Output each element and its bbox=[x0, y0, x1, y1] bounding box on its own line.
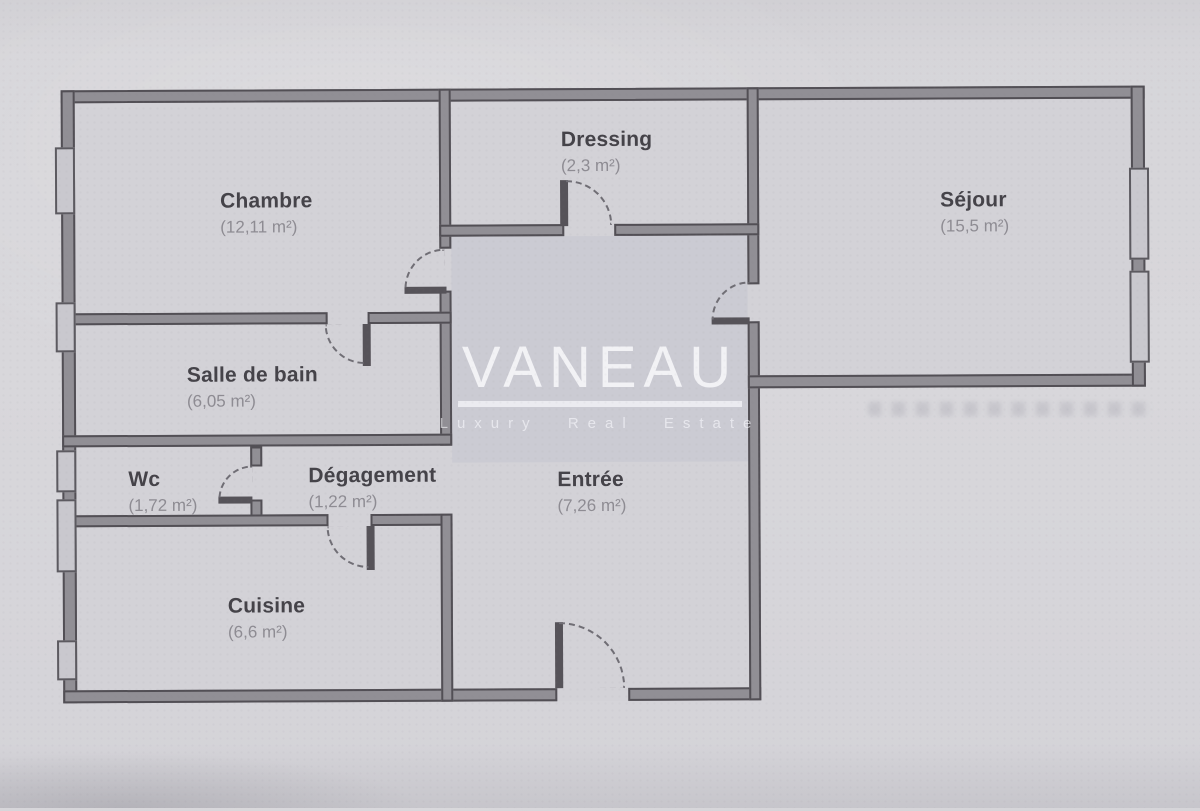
ink-bleed-through-artifact bbox=[868, 402, 1154, 416]
room-area-salle-de-bain: (6,05 m²) bbox=[187, 390, 318, 413]
wall-bottom-left-of-entry-door bbox=[63, 688, 557, 703]
room-name-wc: Wc bbox=[128, 468, 197, 492]
window-chambre-left bbox=[55, 147, 75, 214]
wall-sejour-left-upper bbox=[747, 87, 760, 284]
watermark-rule bbox=[458, 401, 742, 407]
wall-dressing-bottom-right bbox=[614, 223, 759, 236]
wall-salle-de-bain-bottom bbox=[62, 434, 452, 448]
room-area-cuisine: (6,6 m²) bbox=[228, 621, 305, 643]
window-sejour-right-lower bbox=[1129, 271, 1149, 363]
room-name-entree: Entrée bbox=[557, 468, 626, 492]
room-name-cuisine: Cuisine bbox=[228, 594, 305, 618]
room-area-dressing: (2,3 m²) bbox=[561, 155, 653, 177]
wall-wc-degagement-upper bbox=[250, 446, 262, 466]
room-area-wc: (1,72 m²) bbox=[128, 495, 197, 517]
room-label-wc: Wc (1,72 m²) bbox=[128, 468, 197, 517]
room-area-entree: (7,26 m²) bbox=[557, 495, 626, 517]
room-area-degagement: (1,22 m²) bbox=[308, 491, 436, 514]
watermark-brand-logo: VANEAU bbox=[435, 338, 765, 398]
window-wc-left bbox=[56, 499, 76, 572]
room-area-chambre: (12,11 m²) bbox=[220, 216, 313, 238]
room-label-chambre: Chambre (12,11 m²) bbox=[220, 189, 313, 238]
window-sejour-right-upper bbox=[1129, 168, 1149, 260]
wall-dressing-bottom-left bbox=[439, 224, 564, 237]
room-label-degagement: Dégagement (1,22 m²) bbox=[308, 464, 436, 514]
wall-chambre-bottom-right bbox=[368, 312, 452, 324]
room-label-dressing: Dressing (2,3 m²) bbox=[561, 128, 653, 177]
window-salle-de-bain-left bbox=[56, 450, 76, 492]
room-area-sejour: (15,5 m²) bbox=[940, 215, 1009, 237]
window-cuisine-left bbox=[57, 640, 77, 680]
window-chambre-left-lower bbox=[56, 302, 76, 352]
scanned-floor-plan-page: Chambre (12,11 m²) Dressing (2,3 m²) Séj… bbox=[0, 0, 1200, 808]
watermark-tagline: Luxury Real Estate bbox=[435, 415, 765, 432]
room-name-dressing: Dressing bbox=[561, 128, 653, 152]
room-name-degagement: Dégagement bbox=[308, 464, 436, 489]
wall-sejour-bottom bbox=[748, 374, 1146, 389]
room-name-sejour: Séjour bbox=[940, 188, 1009, 212]
room-label-cuisine: Cuisine (6,6 m²) bbox=[228, 594, 305, 643]
agency-watermark: VANEAU Luxury Real Estate bbox=[435, 338, 765, 432]
room-label-sejour: Séjour (15,5 m²) bbox=[940, 188, 1009, 237]
room-label-salle-de-bain: Salle de bain (6,05 m²) bbox=[187, 363, 318, 413]
room-label-entree: Entrée (7,26 m²) bbox=[557, 468, 626, 517]
wall-bottom-right-of-entry-door bbox=[628, 687, 761, 701]
wall-chambre-bottom-left bbox=[62, 312, 328, 325]
room-name-chambre: Chambre bbox=[220, 189, 313, 213]
wall-cuisine-right bbox=[440, 514, 453, 702]
room-name-salle-de-bain: Salle de bain bbox=[187, 363, 318, 388]
